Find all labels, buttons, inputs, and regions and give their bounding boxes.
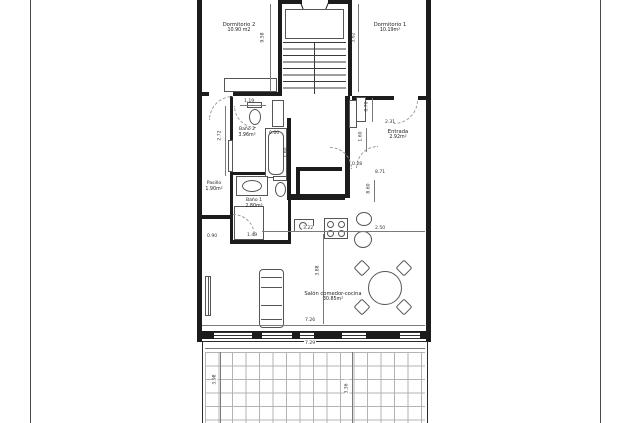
room-area: 2.92m² [376,135,420,141]
dim-line-bano2 [225,106,226,176]
dim-salon-left: 0.90 [207,234,217,239]
label-pasillo: Pasillo 1.90m² [197,181,231,193]
stair-landing [285,9,344,39]
window-2 [262,332,292,339]
label-bano1: Baño 1 2.80m² [234,198,274,210]
dim-line-entrada-top [372,98,373,122]
sofa-armrest-line [261,277,282,278]
dim-bano2-width: 0.60 [269,131,279,136]
room-area: 10.19m² [360,28,420,34]
bano2-door-arc [234,106,256,128]
dim-bano2-left: 2.72 [218,127,223,145]
label-salon: Salón comedor-cocina 30.85m² [298,291,368,303]
chair-ne [396,260,413,277]
dim-line-salon-width [202,325,425,326]
sink1-basin [242,180,262,192]
dim-line-stair-left [270,4,271,92]
pasillo-radiator [228,140,233,172]
toilet1-bowl [275,182,286,197]
dim-line-entrada-left [366,128,367,152]
hall-wardrobe-left [272,100,284,127]
chair-se [396,299,413,316]
terrace-tile-grid [205,352,425,423]
bedroom2-wall-segment2 [233,92,282,96]
dim-entrada-left: 1.60 [359,128,364,146]
stair-wall-top-right [328,0,352,4]
exterior-wall-left [197,0,202,342]
dim-stair-left: 9.58 [261,29,266,47]
dim-line-kitchen [262,231,425,232]
dim-line-salon-mid [323,234,324,324]
dim-entrada-gap: 0.28 [352,162,362,167]
dim-line-terrace-left [220,352,221,423]
bano1-wall-bottom [230,240,291,244]
sheet-border-right [600,0,601,423]
bedroom1-wall-segment2 [418,96,428,100]
drawing-sheet: Dormitorio 2 10.90 m2 Dormitorio 1 10.19… [0,0,630,423]
window-1 [214,332,252,339]
dim-salon-width: 7.26 [304,318,316,323]
dim-line-terrace-mid [352,352,353,423]
chair-nw [354,260,371,277]
sheet-border-left [30,0,31,423]
dim-salon-mid: 3.88 [316,262,321,280]
burner-2 [338,221,345,228]
dim-bano2-right: 1.60 [284,144,289,162]
stair-divider [314,42,315,94]
room-area: 30.85m² [298,297,368,303]
dining-table [368,271,402,305]
dim-stair-right: 3.62 [352,29,357,47]
salon-radiator-line [208,276,209,316]
dim-bano2-top: 1.19 [244,99,254,104]
stair-wall-right [348,0,352,96]
dim-line-bano2-top [240,105,266,106]
boiler-circle-top [356,212,372,226]
dim-kitchen-right: 2.50 [374,226,386,231]
room-area: 2.80m² [234,204,274,210]
dim-entrada-right: 8.60 [367,180,372,198]
sofa-cushion-line2 [261,305,282,306]
bedroom2-wall-segment [197,92,209,96]
sofa-cushion-line1 [261,287,282,288]
label-bano2: Baño 2 3.96m² [228,127,266,139]
dim-entrada-width: 2.31 [385,120,395,125]
dim-entrada-top: 0.70 [365,98,370,116]
dim-line-stair-right [358,4,359,92]
stair-wall-left [278,0,282,96]
pasillo-wall-bottom [197,215,233,219]
bedroom2-door-arc [209,96,233,120]
dim-kitchen-left: 3.22 [302,226,314,231]
dim-entrada-total: 8.71 [375,170,385,175]
burner-1 [327,221,334,228]
bathtub-inner [268,131,284,175]
label-dormitorio1: Dormitorio 1 10.19m² [360,22,420,34]
dim-terrace-width: 7.29 [304,341,316,346]
window-4 [342,332,366,339]
store-wall-side [296,167,300,200]
exterior-wall-right [426,0,431,342]
window-5 [400,332,420,339]
dim-bano1-bottom: 1.49 [247,233,257,238]
sofa-armrest-line2 [261,319,282,320]
dim-terrace-left: 3.98 [213,371,218,389]
entry-door-arc [394,100,418,124]
boiler-circle-bottom [354,231,372,248]
dim-terrace-mid: 3.36 [345,380,350,398]
room-area: 3.96m² [228,133,266,139]
dim-line-terrace-width [205,348,425,349]
window-3 [300,332,314,339]
label-entrada: Entrada 2.92m² [376,129,420,141]
room-area: 1.90m² [197,187,231,193]
toilet1-tank [273,176,287,181]
dim-line-entrada-right [374,180,375,202]
